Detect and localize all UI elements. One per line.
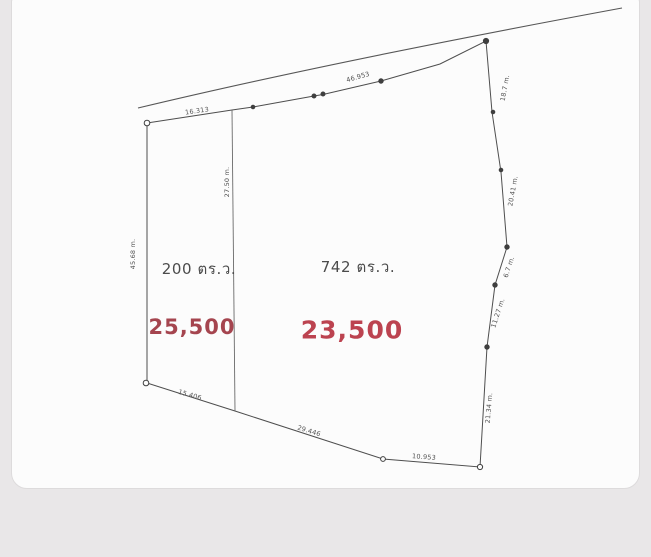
scanned-diagram-layer: 16.31346.95318.7 m.20.41 m.6.7 m.11.27 m… bbox=[0, 0, 651, 557]
corner-marker bbox=[477, 464, 482, 469]
station-marker bbox=[251, 105, 255, 109]
road-line bbox=[138, 8, 622, 108]
corner-marker bbox=[144, 120, 150, 126]
dimension-label: 45.68 m. bbox=[129, 239, 137, 270]
plot-left-area-label: 200 ตร.ว. bbox=[162, 257, 237, 281]
plot-right-price: 23,500 bbox=[301, 316, 403, 345]
photo-background: 16.31346.95318.7 m.20.41 m.6.7 m.11.27 m… bbox=[0, 0, 651, 557]
station-marker bbox=[379, 79, 383, 83]
station-marker bbox=[505, 245, 509, 249]
dimension-label: 27.50 m. bbox=[223, 167, 231, 198]
corner-marker bbox=[381, 457, 386, 462]
plot-left-price: 25,500 bbox=[148, 315, 235, 339]
station-marker bbox=[312, 94, 316, 98]
survey-markers bbox=[143, 38, 509, 469]
dimension-label: 10.953 bbox=[412, 452, 436, 462]
corner-marker bbox=[143, 380, 149, 386]
station-marker bbox=[321, 92, 325, 96]
plot-right-area-label: 742 ตร.ว. bbox=[321, 255, 396, 279]
station-marker bbox=[493, 283, 497, 287]
station-marker bbox=[499, 168, 503, 172]
station-marker bbox=[491, 110, 495, 114]
corner-marker bbox=[483, 38, 488, 43]
plot-boundary-outline bbox=[147, 41, 507, 467]
station-marker bbox=[485, 345, 489, 349]
